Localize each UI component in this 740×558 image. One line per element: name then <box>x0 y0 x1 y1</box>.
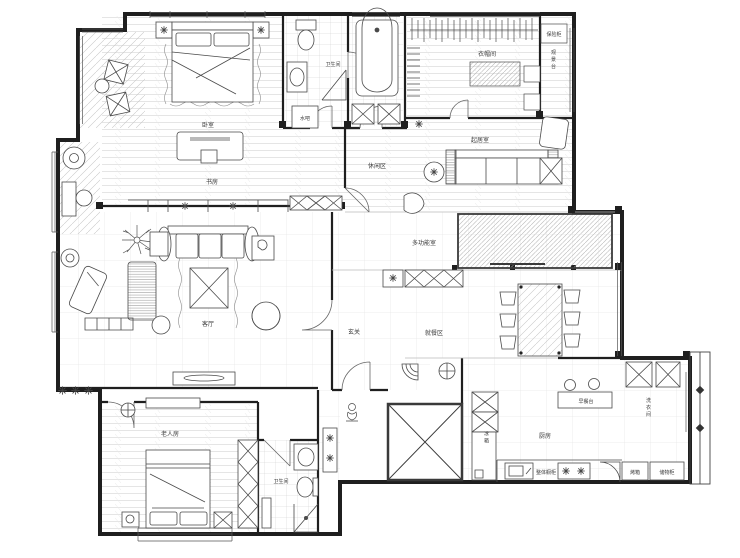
terrace-table <box>95 79 109 93</box>
sink-basin <box>290 68 304 86</box>
tv-console <box>173 372 235 385</box>
label-view-deck: 观景台 <box>550 50 556 71</box>
label-laundry: 洗衣间 <box>645 397 651 419</box>
side-round-table <box>61 249 79 267</box>
plant-icon <box>326 454 334 462</box>
label-bath-2: 卫生间 <box>273 478 288 485</box>
floor-plan-canvas: 卧室 书房 卫生间 水吧 衣帽间 保险柜 观景台 起居室 休闲区 多功能室 玄关… <box>0 0 740 558</box>
statue-icon <box>346 404 358 422</box>
sofa-arm-left <box>446 150 456 184</box>
plant-icon <box>229 202 237 210</box>
pillow <box>180 512 207 525</box>
sofa-cushion <box>176 234 198 258</box>
closet-island <box>470 62 520 86</box>
sofa-seat <box>455 158 548 184</box>
equipment-shaft <box>690 352 710 484</box>
lamp-icon <box>257 26 265 34</box>
label-breakfast-bar: 早餐台 <box>578 398 593 405</box>
dining-table <box>518 284 562 356</box>
entry-lobby <box>346 404 462 481</box>
lamp-icon <box>160 26 168 34</box>
pillow <box>176 33 211 46</box>
label-storage-cabinet: 储物柜 <box>659 469 674 476</box>
elevator-cross <box>388 404 462 480</box>
suite-passage-floor <box>283 130 345 206</box>
console-cabinet-row <box>405 270 463 287</box>
bar-stool <box>589 379 600 390</box>
label-safe-box: 保险柜 <box>546 31 561 38</box>
toilet-bowl <box>297 477 313 497</box>
drawer-unit <box>524 66 540 82</box>
plant-icon <box>415 120 423 128</box>
label-cabinet-run: 整体橱柜 <box>536 469 556 476</box>
sink-basin <box>298 448 314 466</box>
toilet-bowl <box>298 30 314 50</box>
round-rug <box>63 147 85 169</box>
plant-stand <box>150 232 168 256</box>
desk-chair <box>76 190 92 206</box>
plant-icon <box>58 386 66 394</box>
multi-function-room <box>458 214 612 268</box>
label-living-room: 客厅 <box>202 320 214 328</box>
tatami-platform <box>458 214 612 268</box>
label-study: 书房 <box>206 178 218 186</box>
label-dining-area: 就餐区 <box>425 329 443 337</box>
plant-icon <box>84 386 92 394</box>
plant-icon <box>71 386 79 394</box>
armchair <box>539 116 569 149</box>
pillow <box>214 33 249 46</box>
elder-wardrobe <box>238 440 258 528</box>
dresser <box>146 398 200 408</box>
label-foyer: 玄关 <box>348 328 360 336</box>
sofa-back <box>455 150 548 158</box>
plant-icon <box>181 202 189 210</box>
pillow <box>150 512 177 525</box>
plant-icon <box>430 168 438 176</box>
sofa-cushion <box>222 234 244 258</box>
label-master-bath: 卫生间 <box>325 61 340 68</box>
dresser-stool <box>201 150 217 163</box>
suite-wardrobe <box>290 196 342 210</box>
tv-unit <box>122 512 139 527</box>
plant-icon <box>389 274 397 282</box>
label-master-bedroom: 卧室 <box>202 121 214 129</box>
toilet-tank <box>296 20 316 30</box>
dining-chairs-right <box>564 290 580 347</box>
toilet-tank <box>313 478 318 496</box>
dining-chairs-left <box>500 292 516 349</box>
bar-stool <box>565 380 576 391</box>
label-leisure-area: 休闲区 <box>368 162 386 170</box>
kitchen-sink <box>509 466 523 476</box>
piano <box>128 262 156 320</box>
label-fridge: 冰箱 <box>483 430 489 445</box>
label-water-bar: 水吧 <box>300 115 310 122</box>
label-sitting-room: 起居室 <box>471 136 489 144</box>
table-lamp-icon <box>258 240 267 250</box>
plant-icon <box>326 434 334 442</box>
label-oven: 烤箱 <box>630 469 640 476</box>
sofa-cushion <box>199 234 221 258</box>
bed-headboard <box>172 22 253 30</box>
sofa-back <box>168 226 248 234</box>
desk <box>62 182 76 216</box>
label-kitchen: 厨房 <box>539 432 551 440</box>
label-multi-room: 多功能室 <box>412 239 436 247</box>
floor-plan-drawing: 卧室 书房 卫生间 水吧 衣帽间 保险柜 观景台 起居室 休闲区 多功能室 玄关… <box>0 0 740 558</box>
burner-icon <box>577 467 585 475</box>
label-cloakroom: 衣帽间 <box>478 50 496 58</box>
bath-bench <box>262 498 271 528</box>
drawer-unit <box>524 94 540 110</box>
round-stool <box>152 316 170 334</box>
shower-drain <box>304 516 308 520</box>
tub-drain <box>375 28 379 32</box>
burner-icon <box>562 467 570 475</box>
tall-cabinets <box>472 392 498 432</box>
label-elder-room: 老人房 <box>161 430 179 438</box>
